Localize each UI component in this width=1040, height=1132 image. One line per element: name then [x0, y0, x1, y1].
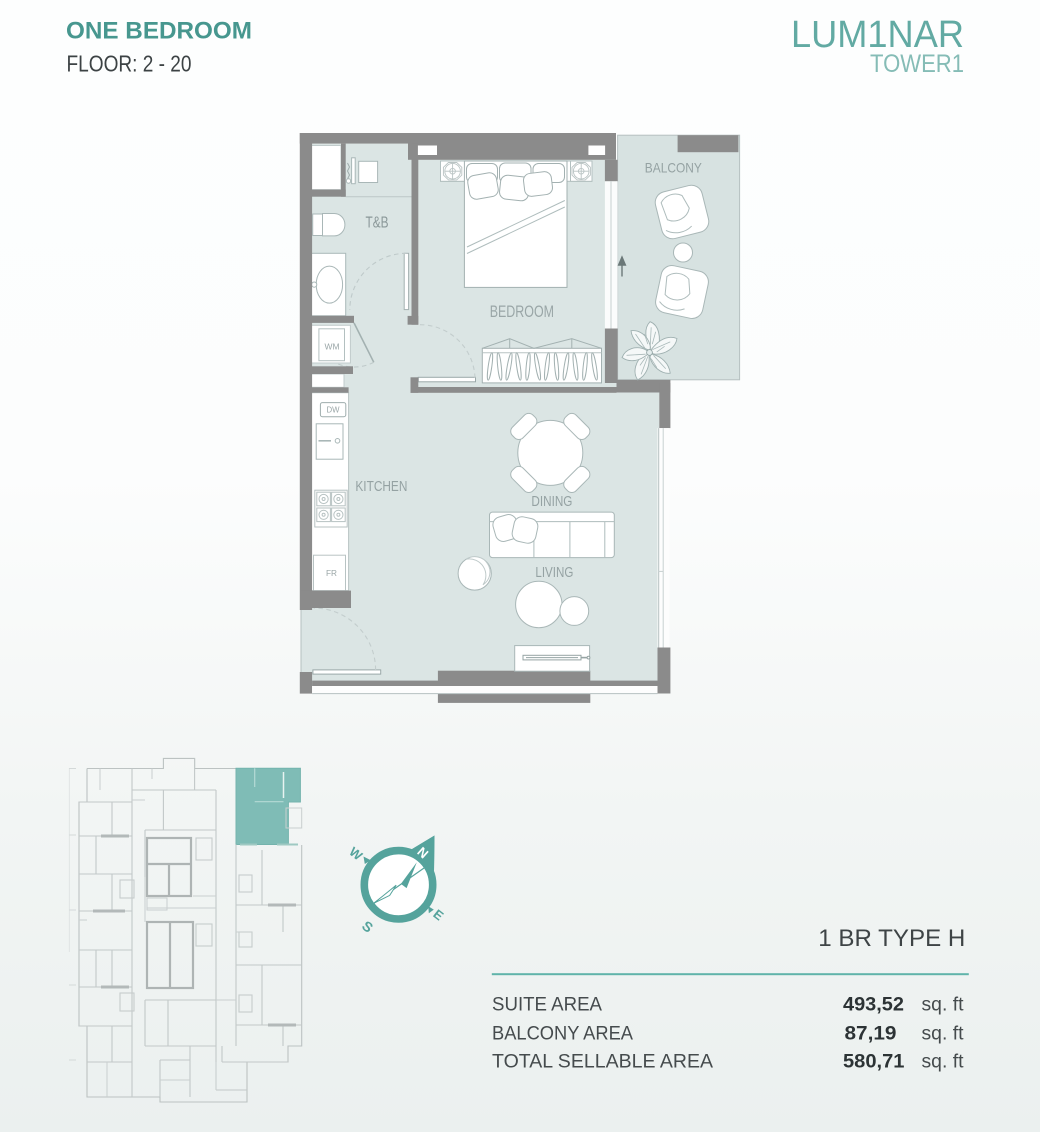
svg-text:FR: FR [326, 569, 337, 578]
svg-text:T&B: T&B [366, 215, 389, 232]
svg-text:SUITE AREA: SUITE AREA [492, 994, 602, 1016]
svg-text:1 BR TYPE H: 1 BR TYPE H [818, 925, 965, 952]
svg-text:BEDROOM: BEDROOM [490, 302, 554, 321]
svg-text:BALCONY: BALCONY [645, 160, 703, 176]
svg-text:DW: DW [327, 406, 340, 415]
svg-text:sq. ft: sq. ft [922, 1051, 965, 1073]
svg-text:580,71: 580,71 [843, 1051, 905, 1073]
svg-text:TOWER1: TOWER1 [870, 50, 964, 78]
svg-text:ONE BEDROOM: ONE BEDROOM [66, 18, 252, 45]
svg-text:sq. ft: sq. ft [922, 994, 965, 1016]
svg-text:KITCHEN: KITCHEN [355, 478, 407, 495]
svg-text:87,19: 87,19 [845, 1022, 897, 1044]
svg-text:TOTAL SELLABLE AREA: TOTAL SELLABLE AREA [492, 1051, 713, 1073]
svg-text:DINING: DINING [531, 493, 572, 510]
svg-text:493,52: 493,52 [843, 994, 904, 1016]
svg-text:LIVING: LIVING [535, 564, 573, 581]
svg-text:BALCONY AREA: BALCONY AREA [492, 1022, 633, 1044]
svg-text:FLOOR: 2 - 20: FLOOR: 2 - 20 [67, 51, 192, 77]
svg-text:sq. ft: sq. ft [922, 1022, 965, 1044]
svg-text:WM: WM [325, 343, 340, 352]
